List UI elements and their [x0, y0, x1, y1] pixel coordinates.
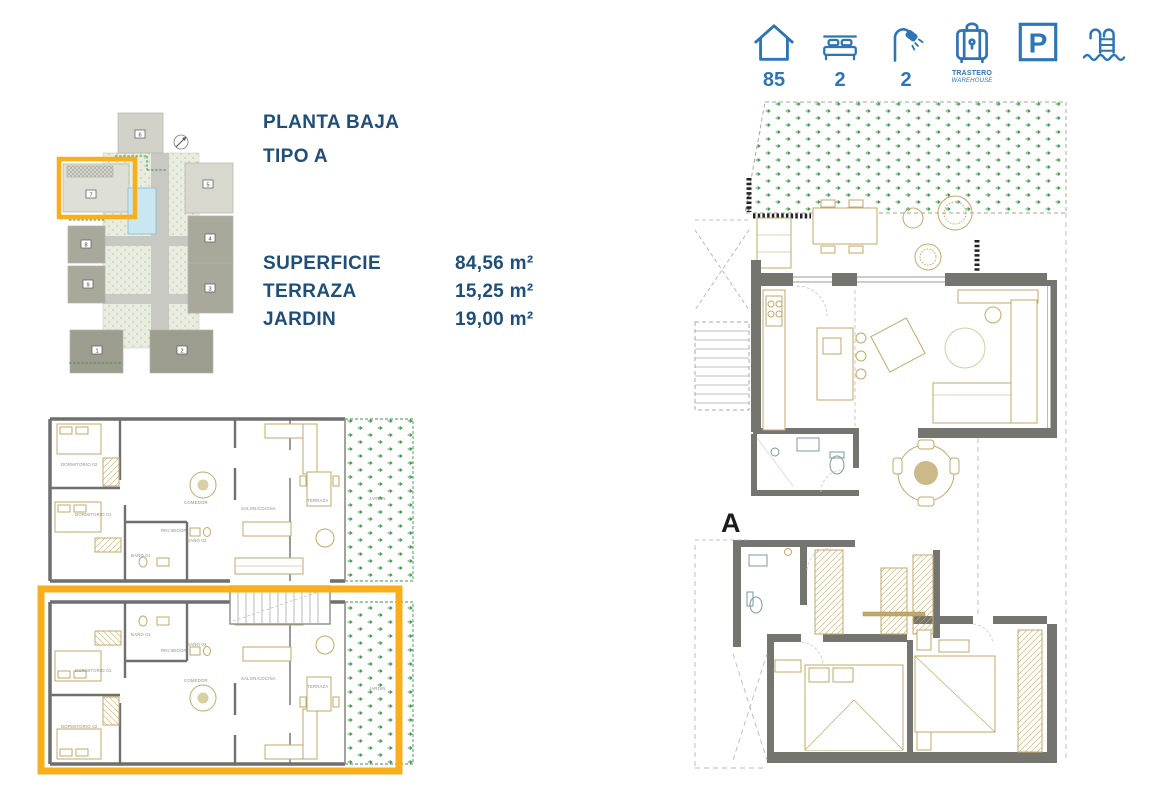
- title-line2: TIPO A: [263, 140, 399, 174]
- block-7: 7: [89, 192, 92, 198]
- overview-unit-top: [50, 419, 413, 581]
- main-living: [871, 290, 1038, 423]
- bedrooms-value: 2: [834, 69, 845, 91]
- overview-plan: DORMITORIO 02 DORMITORIO 01 BAÑO 01 RECI…: [35, 410, 420, 778]
- shower-icon: [884, 20, 928, 68]
- warehouse-icon: [947, 18, 997, 68]
- room-label: TERRAZA: [307, 498, 328, 503]
- block-3: 3: [208, 286, 211, 292]
- room-label: DORMITORIO 01: [75, 512, 112, 517]
- block-4: 4: [208, 236, 211, 242]
- overview-plan-svg: DORMITORIO 02 DORMITORIO 01 BAÑO 01 RECI…: [35, 410, 420, 778]
- spec-label: JARDIN: [263, 309, 455, 331]
- room-label: BAÑO 02: [187, 642, 207, 647]
- entry-door-arc: [797, 286, 827, 316]
- room-label: BAÑO 01: [131, 632, 151, 637]
- stat-parking: P: [1006, 14, 1070, 91]
- main-bathroom1: [757, 438, 844, 486]
- room-label: BAÑO 01: [131, 553, 151, 558]
- communal-stairs: [695, 220, 749, 540]
- section-label: A: [721, 508, 741, 538]
- spec-value: 15,25 m²: [455, 281, 533, 303]
- parking-letter: P: [1029, 27, 1048, 58]
- block-9: 9: [86, 282, 89, 288]
- main-kitchen: [763, 290, 866, 430]
- block-6: 6: [138, 132, 141, 138]
- storage-label-en: WAREHOUSE: [951, 78, 992, 85]
- room-label: DORMITORIO 02: [61, 724, 98, 729]
- house-icon: [751, 20, 797, 68]
- spec-label: TERRAZA: [263, 281, 455, 303]
- room-label: BAÑO 02: [187, 538, 207, 543]
- site-pool: [128, 188, 156, 234]
- spec-row-jardin: JARDIN 19,00 m²: [263, 306, 533, 334]
- block-1: 1: [95, 348, 98, 354]
- stat-storage: TRASTERO WAREHOUSE: [940, 14, 1004, 91]
- north-arrow-icon: [174, 135, 188, 149]
- room-label: DORMITORIO 02: [61, 462, 98, 467]
- bathrooms-value: 2: [900, 69, 911, 91]
- parking-icon: P: [1013, 16, 1063, 68]
- spec-row-superficie: SUPERFICIE 84,56 m²: [263, 250, 533, 278]
- area-value: 85: [763, 69, 785, 91]
- room-label: JARDIN: [369, 686, 386, 691]
- title-line1: PLANTA BAJA: [263, 106, 399, 140]
- spec-value: 19,00 m²: [455, 309, 533, 331]
- brochure-page: 85 2 2: [0, 0, 1170, 785]
- plan-title: PLANTA BAJA TIPO A: [263, 106, 399, 174]
- room-label: TERRAZA: [307, 684, 328, 689]
- main-dining-table: [893, 440, 959, 506]
- storage-label-es: TRASTERO: [952, 70, 992, 78]
- main-floor-plan: A: [693, 100, 1073, 775]
- main-garden: [745, 102, 1066, 213]
- spec-row-terraza: TERRAZA 15,25 m²: [263, 278, 533, 306]
- pool-icon: [1078, 22, 1130, 68]
- stat-bathrooms: 2: [874, 14, 938, 91]
- stats-strip: 85 2 2: [742, 14, 1136, 91]
- room-label: SALON/COCINA: [241, 506, 276, 511]
- main-bedroom2: [915, 630, 995, 750]
- stat-pool: [1072, 14, 1136, 91]
- spec-value: 84,56 m²: [455, 253, 533, 275]
- block-2: 2: [180, 348, 183, 354]
- room-label: JARDIN: [369, 496, 386, 501]
- room-label: COMEDOR: [184, 500, 208, 505]
- stat-area: 85: [742, 14, 806, 91]
- spec-label: SUPERFICIE: [263, 253, 455, 275]
- block-5: 5: [206, 182, 209, 188]
- room-label: SALON/COCINA: [241, 676, 276, 681]
- site-plan-svg: 6 7 5 4 3 8 9 1 2: [55, 108, 235, 376]
- overview-unit-bottom: [50, 602, 413, 764]
- room-label: COMEDOR: [184, 678, 208, 683]
- stat-bedrooms: 2: [808, 14, 872, 91]
- bed-icon: [816, 26, 864, 68]
- spec-table: SUPERFICIE 84,56 m² TERRAZA 15,25 m² JAR…: [263, 250, 533, 334]
- main-bedroom1: [775, 660, 903, 750]
- site-plan: 6 7 5 4 3 8 9 1 2: [55, 108, 235, 376]
- room-label: RECIBIDOR: [161, 648, 187, 653]
- main-bathroom2: [747, 549, 792, 614]
- room-label: DORMITORIO 01: [75, 668, 112, 673]
- block-8: 8: [84, 242, 87, 248]
- room-label: RECIBIDOR: [161, 528, 187, 533]
- main-floor-plan-svg: A: [693, 100, 1073, 775]
